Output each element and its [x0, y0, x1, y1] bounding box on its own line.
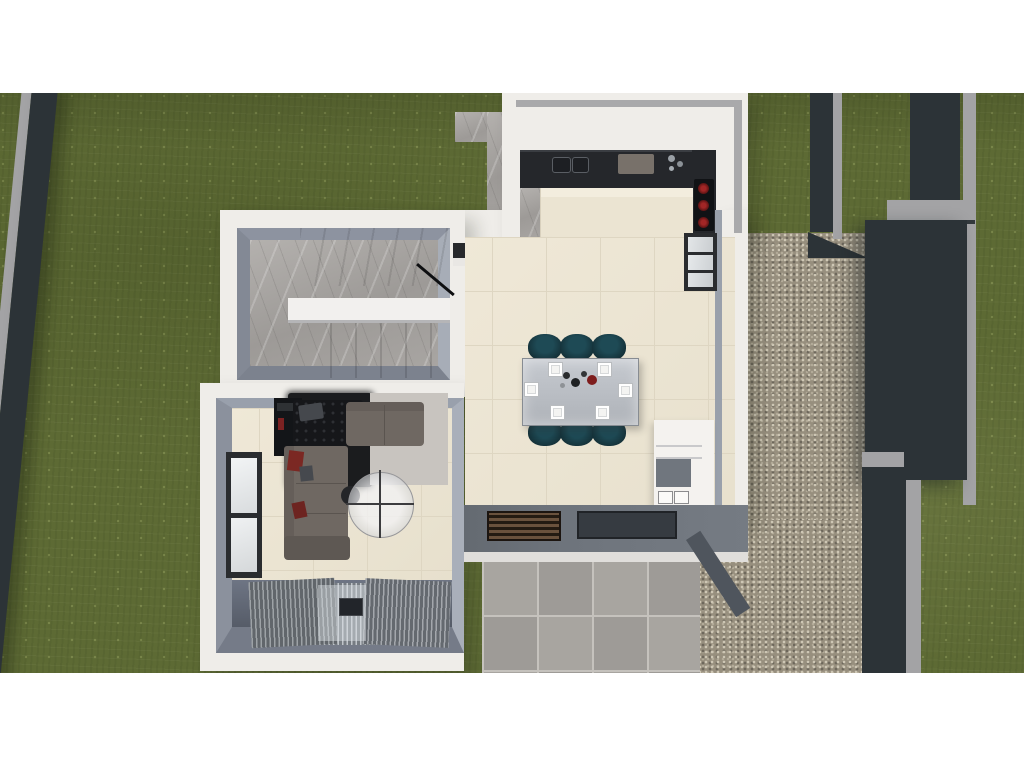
coffee-table-round — [348, 472, 414, 538]
render-canvas — [0, 0, 1024, 768]
fence-left-wall — [0, 93, 58, 673]
sofa-left-seam-1 — [296, 483, 346, 484]
coffee-table-leg-vertical — [379, 470, 381, 538]
deck-drain — [339, 598, 363, 616]
place-setting-1 — [548, 362, 563, 377]
garden-wall-lower-cap — [906, 480, 921, 673]
cooktop-burner-1 — [698, 183, 709, 194]
daybed-pillow — [298, 402, 324, 421]
dining-window-right-pane-3 — [688, 273, 713, 287]
deck-louvers-bundle-right — [363, 578, 452, 648]
place-setting-6 — [595, 405, 610, 420]
kitchen-deco-dot-2 — [677, 161, 683, 167]
dining-chair-top-1 — [528, 334, 562, 361]
dining-window-right-pane-1 — [688, 237, 713, 252]
sofa-chaise — [346, 402, 424, 446]
living-window-left-pane-2 — [231, 518, 257, 572]
patio-terrace — [482, 562, 700, 673]
boundary-fence-left — [0, 93, 58, 673]
site-lawn — [0, 93, 1024, 673]
gravel-court-upper — [747, 233, 865, 520]
shelving-box-1 — [658, 491, 673, 504]
dining-window-right-pane-2 — [688, 255, 713, 270]
stair-upper-flight-treads — [300, 228, 448, 286]
place-setting-2 — [597, 362, 612, 377]
kitchen-deco-dot-3 — [669, 166, 674, 171]
kitchen-parapet-top — [516, 100, 742, 107]
garden-wall-dark — [865, 220, 967, 480]
dining-chair-top-2 — [560, 334, 594, 361]
fence-right-b-wall — [910, 93, 960, 200]
stair-landing-wall — [288, 298, 450, 323]
living-window-left-pane-1 — [231, 458, 257, 513]
centerpiece-dark-3 — [581, 371, 587, 377]
shelving-box-2 — [674, 491, 689, 504]
centerpiece-dark-1 — [563, 372, 570, 379]
kitchen-counter-tray — [618, 154, 654, 174]
place-setting-4 — [618, 383, 633, 398]
centerpiece-red — [587, 375, 597, 385]
wall-south-opening-dark — [577, 511, 677, 539]
sofa-chaise-seam — [384, 405, 385, 445]
centerpiece-dark-2 — [571, 378, 580, 387]
kitchen-sink-basin-right — [572, 157, 589, 173]
stair-lower-flight-treads — [330, 320, 448, 378]
kitchen-floor-marble-strip — [520, 188, 540, 238]
kitchen-sink-basin-left — [552, 157, 571, 173]
sofa-pillow-grey — [299, 465, 313, 481]
kitchen-parapet-right — [734, 100, 742, 233]
place-setting-3 — [524, 382, 539, 397]
sofa-armrest — [284, 536, 350, 560]
tv-cabinet-red-accent — [278, 418, 284, 430]
kitchen-deco-dot-1 — [668, 155, 675, 162]
centerpiece-grey — [560, 383, 565, 388]
garden-wall-step-cap — [862, 452, 904, 467]
fence-right-a-wall — [810, 93, 833, 232]
dining-chair-top-3 — [592, 334, 626, 361]
shelving-shelf-line-1 — [656, 445, 702, 447]
kitchen-island — [540, 188, 693, 238]
cooktop-burner-3 — [698, 217, 709, 228]
wall-south-opening-slatted — [487, 511, 561, 541]
fence-right-a-cap — [833, 93, 842, 239]
place-setting-5 — [550, 405, 565, 420]
cooktop-burner-2 — [698, 200, 709, 211]
shelving-cabinet-grey — [656, 459, 691, 487]
